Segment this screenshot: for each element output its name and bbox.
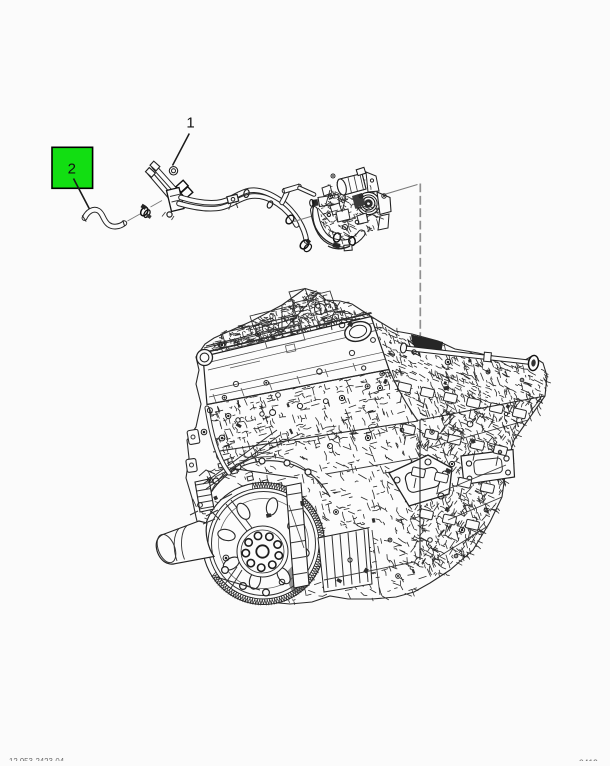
svg-text:0419: 0419 [579, 758, 598, 762]
svg-text:1: 1 [186, 115, 194, 132]
svg-text:12.953-2423-04: 12.953-2423-04 [9, 757, 65, 761]
svg-text:2: 2 [68, 161, 76, 178]
